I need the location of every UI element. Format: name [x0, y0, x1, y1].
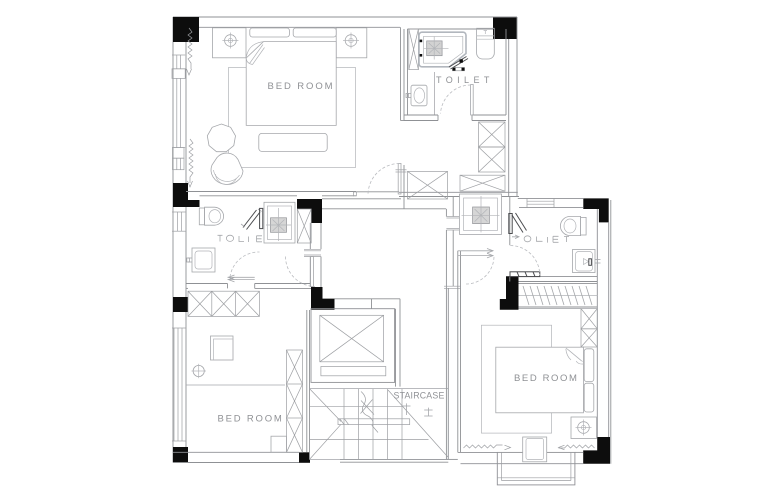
svg-text:BED ROOM: BED ROOM [268, 81, 335, 92]
svg-text:TOILET: TOILET [436, 75, 494, 85]
svg-text:BED ROOM: BED ROOM [514, 373, 579, 384]
svg-text:STAIRCASE: STAIRCASE [394, 391, 445, 401]
svg-text:BED ROOM: BED ROOM [218, 414, 284, 425]
